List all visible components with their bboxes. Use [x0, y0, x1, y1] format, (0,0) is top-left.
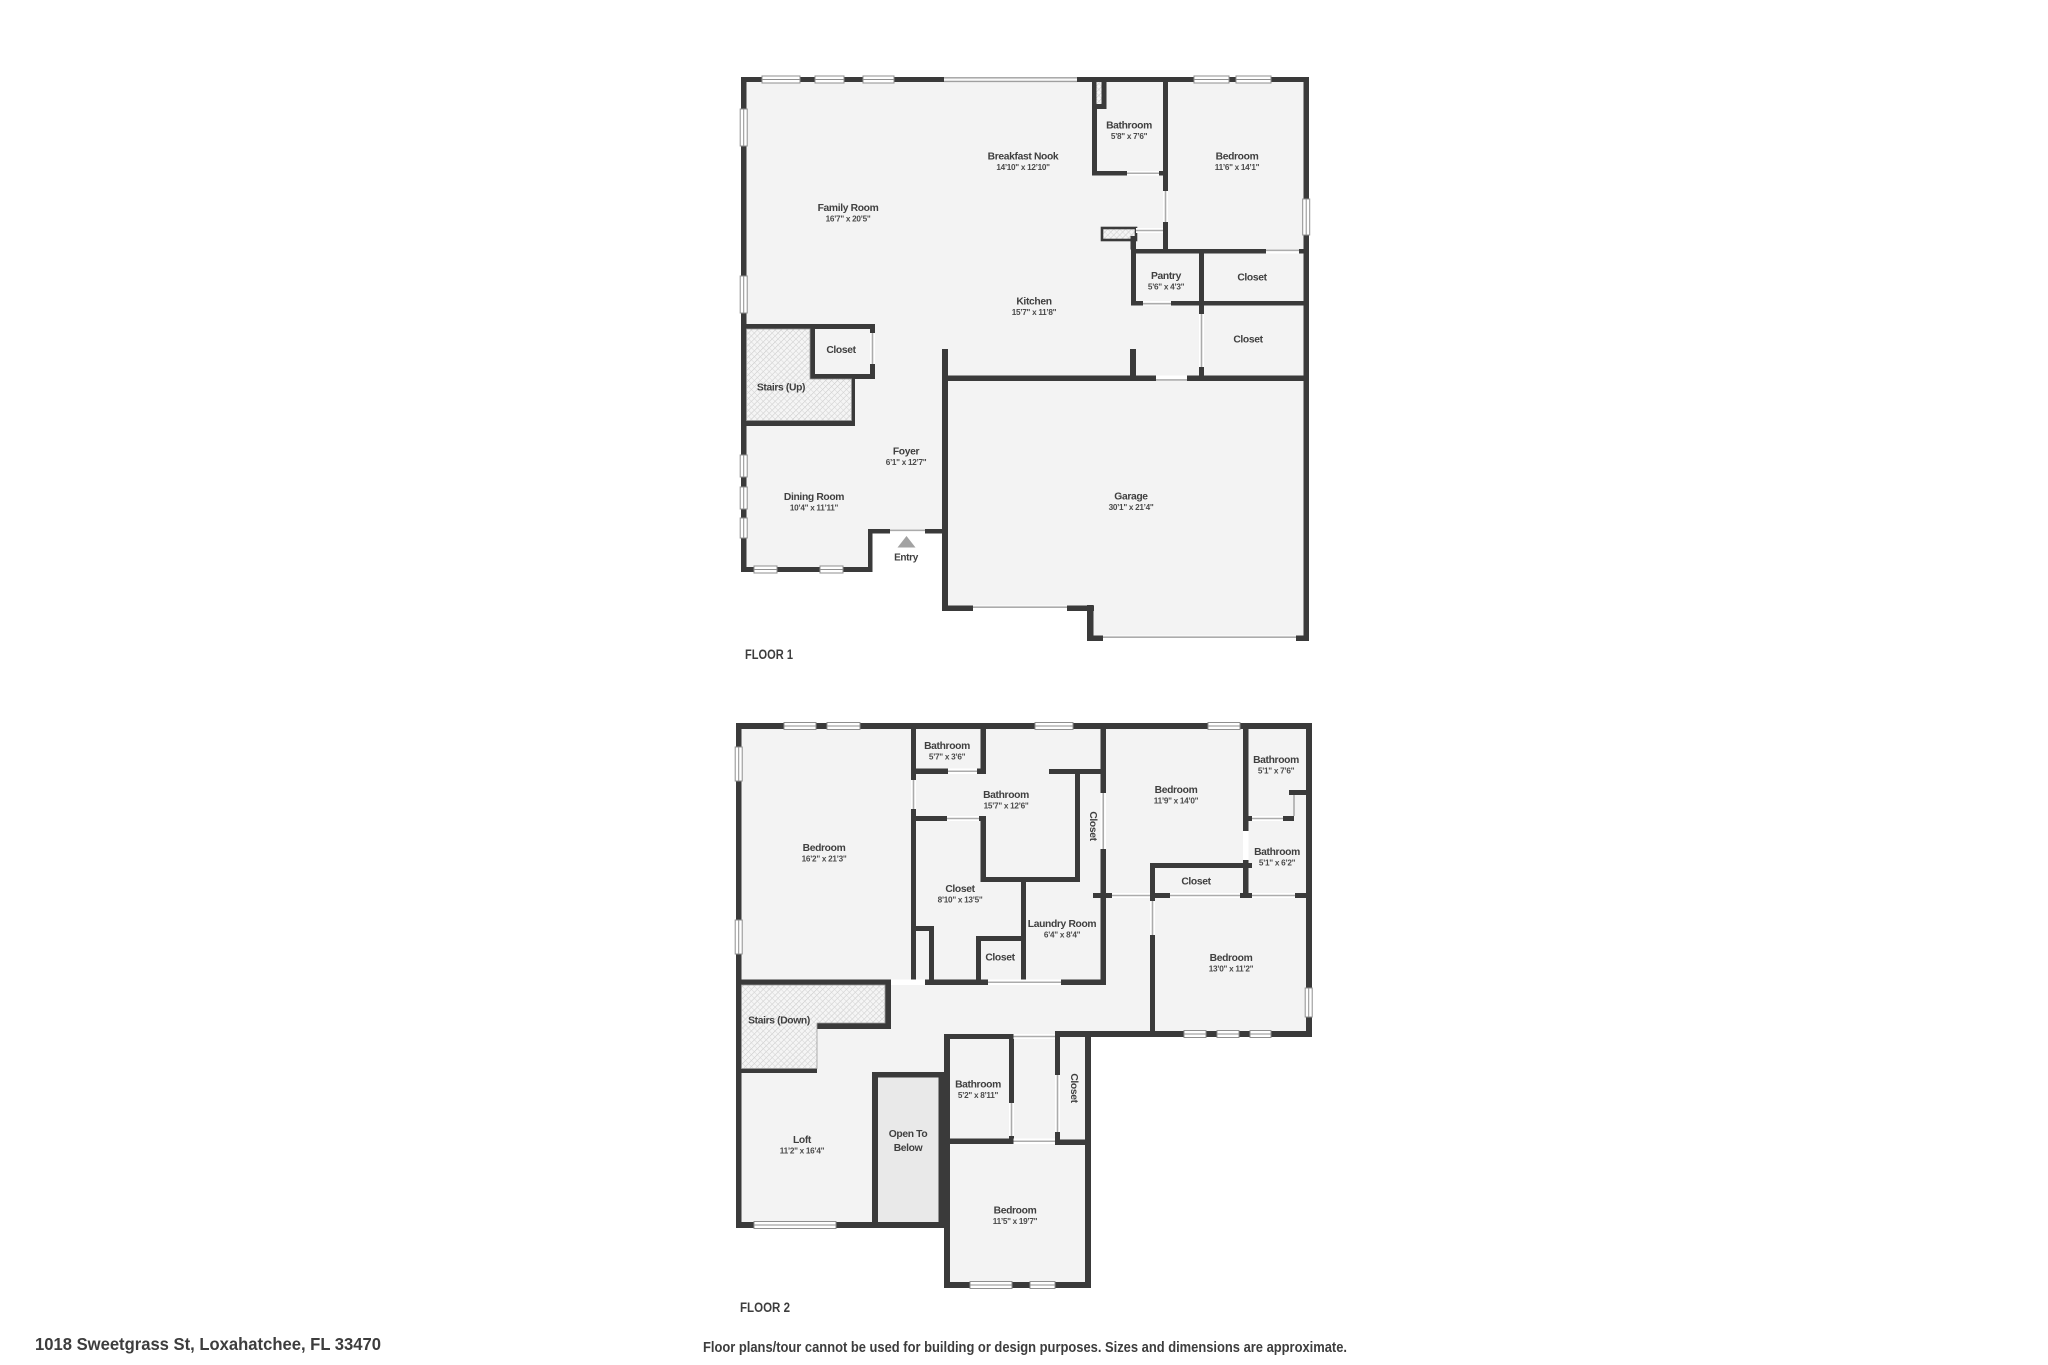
svg-text:11’2" x 16’4": 11’2" x 16’4"	[780, 1147, 825, 1156]
svg-text:Foyer: Foyer	[893, 447, 920, 458]
svg-text:Closet: Closet	[945, 884, 975, 895]
svg-text:13’0" x 11’2": 13’0" x 11’2"	[1209, 965, 1254, 974]
svg-text:Loft: Loft	[793, 1135, 812, 1146]
svg-text:Bathroom: Bathroom	[983, 790, 1029, 801]
svg-text:6’4" x 8’4": 6’4" x 8’4"	[1044, 931, 1081, 940]
svg-text:11’5" x 19’7": 11’5" x 19’7"	[993, 1217, 1038, 1226]
svg-text:Bathroom: Bathroom	[1253, 755, 1299, 766]
svg-text:Closet: Closet	[1233, 335, 1263, 346]
svg-text:Laundry Room: Laundry Room	[1028, 919, 1097, 930]
svg-text:6’1" x 12’7": 6’1" x 12’7"	[886, 458, 927, 467]
svg-text:FLOOR 2: FLOOR 2	[740, 1300, 790, 1315]
svg-text:Closet: Closet	[1087, 811, 1098, 841]
svg-text:Closet: Closet	[1068, 1073, 1079, 1103]
svg-text:Stairs (Up): Stairs (Up)	[757, 383, 805, 394]
svg-text:Garage: Garage	[1114, 492, 1148, 503]
svg-text:11’9" x 14’0": 11’9" x 14’0"	[1154, 797, 1199, 806]
svg-text:Family Room: Family Room	[818, 203, 879, 214]
svg-text:11’6" x 14’1": 11’6" x 14’1"	[1215, 163, 1260, 172]
svg-text:5’1" x 6’2": 5’1" x 6’2"	[1259, 859, 1296, 868]
svg-text:5’8" x 7’6": 5’8" x 7’6"	[1111, 132, 1148, 141]
svg-text:Below: Below	[894, 1143, 924, 1154]
svg-text:5’2" x 8’11": 5’2" x 8’11"	[958, 1091, 999, 1100]
svg-text:15’7" x 12’6": 15’7" x 12’6"	[984, 802, 1029, 811]
svg-text:Entry: Entry	[894, 553, 919, 564]
svg-text:Bathroom: Bathroom	[955, 1080, 1001, 1091]
svg-text:Dining Room: Dining Room	[784, 492, 844, 503]
svg-text:Bathroom: Bathroom	[924, 741, 970, 752]
svg-text:8’10" x 13’5": 8’10" x 13’5"	[938, 896, 983, 905]
svg-text:Stairs (Down): Stairs (Down)	[748, 1016, 810, 1027]
svg-text:Bedroom: Bedroom	[1210, 953, 1253, 964]
svg-text:Closet: Closet	[1181, 877, 1211, 888]
svg-text:30’1" x 21’4": 30’1" x 21’4"	[1109, 503, 1154, 512]
svg-text:10’4" x 11’11": 10’4" x 11’11"	[790, 504, 839, 513]
svg-text:Open To: Open To	[889, 1129, 928, 1140]
svg-text:Bedroom: Bedroom	[803, 843, 846, 854]
svg-text:Bedroom: Bedroom	[994, 1206, 1037, 1217]
svg-text:5’7" x 3’6": 5’7" x 3’6"	[929, 753, 966, 762]
svg-text:1018 Sweetgrass St, Loxahatche: 1018 Sweetgrass St, Loxahatchee, FL 3347…	[35, 1334, 381, 1354]
svg-text:Bedroom: Bedroom	[1216, 152, 1259, 163]
svg-text:5’1" x 7’6": 5’1" x 7’6"	[1258, 767, 1295, 776]
svg-text:5’6" x 4’3": 5’6" x 4’3"	[1148, 283, 1185, 292]
svg-text:16’2" x 21’3": 16’2" x 21’3"	[802, 855, 847, 864]
svg-text:15’7" x 11’8": 15’7" x 11’8"	[1012, 308, 1057, 317]
svg-text:Closet: Closet	[826, 345, 856, 356]
svg-text:Breakfast Nook: Breakfast Nook	[988, 152, 1059, 163]
svg-text:Closet: Closet	[985, 953, 1015, 964]
svg-text:Bathroom: Bathroom	[1106, 121, 1152, 132]
svg-text:16’7" x 20’5": 16’7" x 20’5"	[826, 215, 871, 224]
svg-text:Closet: Closet	[1237, 273, 1267, 284]
svg-text:Bathroom: Bathroom	[1254, 847, 1300, 858]
svg-text:FLOOR 1: FLOOR 1	[745, 647, 793, 662]
svg-text:Bedroom: Bedroom	[1155, 785, 1198, 796]
svg-text:Floor plans/tour cannot be use: Floor plans/tour cannot be used for buil…	[703, 1340, 1347, 1356]
svg-text:14’10" x 12’10": 14’10" x 12’10"	[996, 163, 1050, 172]
svg-text:Pantry: Pantry	[1151, 271, 1182, 282]
svg-text:Kitchen: Kitchen	[1016, 297, 1051, 308]
